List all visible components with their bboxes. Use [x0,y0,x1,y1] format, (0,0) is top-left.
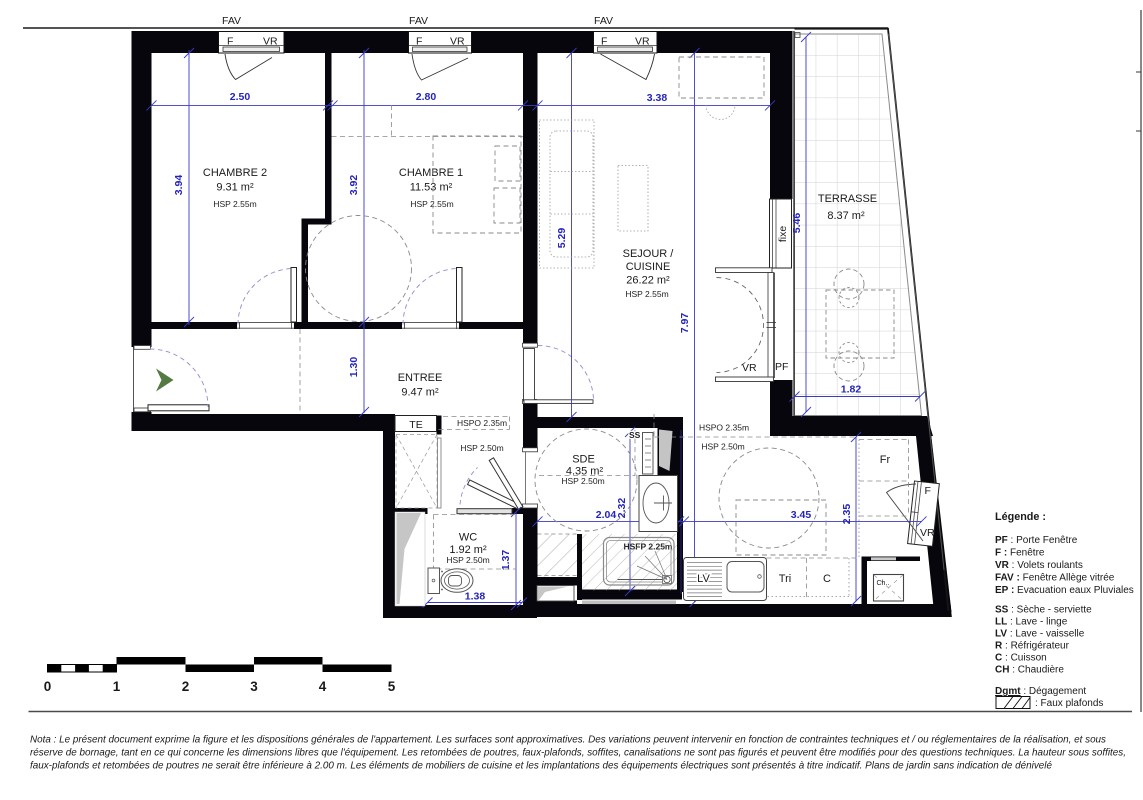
svg-text:5.29: 5.29 [556,228,568,249]
svg-text:VR: VR [263,36,278,48]
svg-text:CHAMBRE 1: CHAMBRE 1 [399,167,463,179]
svg-text:C : Cuisson: C : Cuisson [995,653,1047,664]
svg-text:WC: WC [459,532,477,544]
svg-text:HSP 2.55m: HSP 2.55m [625,289,668,299]
svg-text:réserve de bornage, tant en ce: réserve de bornage, tant en ce qui conce… [30,748,1126,759]
svg-text:F: F [925,485,931,497]
svg-text:3.38: 3.38 [647,92,668,104]
svg-text:2.04: 2.04 [596,509,617,521]
svg-text:LV: LV [697,573,710,585]
svg-text:FAV: FAV [594,15,613,27]
svg-text:FAV : Fenêtre Allège vitrée: FAV : Fenêtre Allège vitrée [995,573,1115,584]
svg-text:Tri: Tri [779,573,791,585]
svg-text:CH : Chaudière: CH : Chaudière [995,665,1064,676]
svg-text:1.82: 1.82 [841,384,862,396]
svg-text:VR: VR [742,362,757,374]
svg-text:VR: VR [920,527,935,539]
svg-text:3.94: 3.94 [173,175,185,196]
svg-text:Dgmt : Dégagement: Dgmt : Dégagement [995,686,1086,697]
svg-text:Fr: Fr [880,454,891,466]
svg-text:FAV: FAV [222,15,241,27]
svg-text:1.37: 1.37 [500,550,512,571]
svg-text:3: 3 [250,679,258,694]
svg-text:fixe: fixe [777,226,789,243]
svg-text:HSPO 2.35m: HSPO 2.35m [457,418,507,428]
svg-text:HSPO 2.35m: HSPO 2.35m [699,423,749,433]
svg-text:PF: PF [775,361,788,373]
svg-text:TERRASSE: TERRASSE [818,193,877,205]
svg-text:HSP 2.55m: HSP 2.55m [213,199,256,209]
svg-text:LV : Lave - vaisselle: LV : Lave - vaisselle [995,629,1085,640]
svg-text:1: 1 [113,679,121,694]
svg-text:CHAMBRE 2: CHAMBRE 2 [203,167,267,179]
svg-text:HSP 2.50m: HSP 2.50m [561,476,604,486]
svg-text:HSP 2.50m: HSP 2.50m [460,443,503,453]
svg-text:VR : Volets roulants: VR : Volets roulants [995,560,1083,571]
svg-text:11.53 m²: 11.53 m² [410,182,453,194]
svg-text:Légende :: Légende : [995,511,1046,523]
svg-text:F : Fenêtre: F : Fenêtre [995,548,1045,559]
svg-text:HSP 2.50m: HSP 2.50m [701,442,744,452]
svg-text:2.32: 2.32 [616,498,628,519]
svg-text:HSP 2.50m: HSP 2.50m [446,555,489,565]
svg-text:ENTREE: ENTREE [398,372,443,384]
svg-text:: Faux plafonds: : Faux plafonds [1035,698,1103,709]
svg-text:SS: SS [629,430,641,440]
svg-text:9.47 m²: 9.47 m² [401,387,439,399]
svg-text:Ch..: Ch.. [877,580,890,587]
svg-text:SEJOUR /: SEJOUR / [623,248,675,260]
svg-text:CUISINE: CUISINE [626,261,671,273]
svg-text:5.46: 5.46 [791,213,803,234]
svg-text:F: F [227,36,233,48]
svg-text:FAV: FAV [409,15,428,27]
svg-text:VR: VR [635,36,650,48]
svg-text:HSP 2.55m: HSP 2.55m [410,199,453,209]
svg-text:3.92: 3.92 [348,175,360,196]
svg-text:faux-plafonds et retombées de: faux-plafonds et retombées de poutres ne… [30,761,1053,772]
svg-text:2.50: 2.50 [230,91,251,103]
svg-text:8.37 m²: 8.37 m² [827,210,865,222]
svg-text:Nota : Le présent document exp: Nota : Le présent document exprime la fi… [30,735,1106,746]
svg-text:1.38: 1.38 [465,591,486,603]
svg-text:1.30: 1.30 [348,357,360,378]
svg-text:PF : Porte Fenêtre: PF : Porte Fenêtre [995,535,1078,546]
svg-text:SDE: SDE [572,454,595,466]
svg-text:9.31 m²: 9.31 m² [216,182,254,194]
svg-text:SS : Sèche - serviette: SS : Sèche - serviette [995,605,1092,616]
svg-text:3.45: 3.45 [791,509,812,521]
svg-text:EP : Evacuation eaux Pluviales: EP : Evacuation eaux Pluviales [995,585,1134,596]
svg-text:LL : Lave - linge: LL : Lave - linge [995,617,1068,628]
svg-text:26.22 m²: 26.22 m² [626,275,670,287]
svg-text:2.35: 2.35 [841,504,853,525]
svg-text:TE: TE [409,419,422,431]
svg-text:0: 0 [44,679,52,694]
svg-text:7.97: 7.97 [679,313,691,334]
svg-text:C: C [823,573,831,585]
svg-text:R : Réfrigérateur: R : Réfrigérateur [995,641,1070,652]
svg-text:F: F [416,36,422,48]
svg-text:F: F [601,36,607,48]
svg-text:4: 4 [319,679,327,694]
svg-text:2: 2 [182,679,190,694]
svg-text:2.80: 2.80 [416,91,437,103]
svg-text:5: 5 [388,679,396,694]
svg-text:VR: VR [450,36,465,48]
